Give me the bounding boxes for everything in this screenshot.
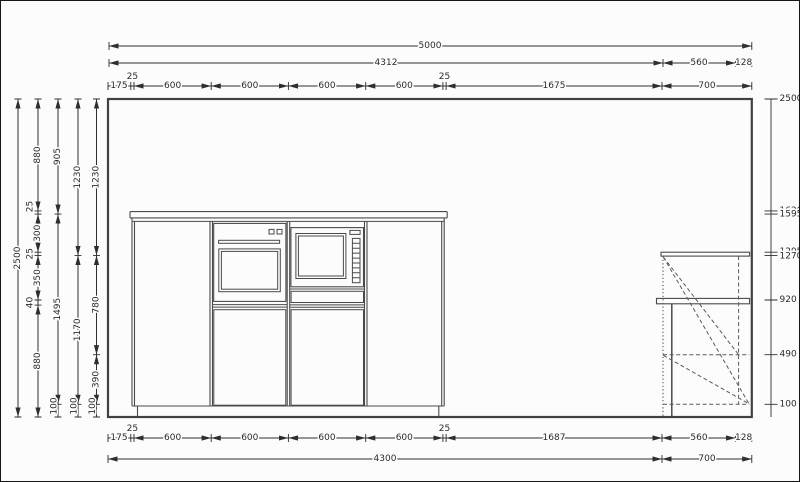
dim-label: 560 [690,433,707,443]
dim-label: 600 [318,433,335,443]
oven-window [219,249,280,292]
dim-label: 600 [164,433,181,443]
dim-label: 25 [26,248,36,259]
dim-label: 1495 [53,298,63,321]
upper-shelf [661,252,750,256]
oven-handle [219,240,280,243]
microwave-cabinet-drawer [291,291,363,302]
oven-knob-icon [269,229,274,234]
cornice [130,212,447,218]
dim-label: 700 [698,81,715,91]
room-outline [108,99,752,417]
dim-label: 600 [241,81,258,91]
dim-label: 600 [241,433,258,443]
dimension-lines [18,46,752,459]
dim-label: 25 [127,424,138,434]
dim-label: 600 [396,433,413,443]
dim-label: 40 [26,297,36,309]
dim-label: 600 [396,81,413,91]
dim-label: 175 [110,81,127,91]
dim-label: 100 [70,397,80,414]
dim-label: 100 [50,397,60,414]
built-in-microwave [291,228,364,287]
elevation-label: 920 [780,295,797,305]
dim-label: 25 [439,72,450,82]
oven-knob-icon [277,229,282,234]
dim-label: 4300 [374,454,397,464]
tall-cabinet-run [130,212,447,416]
kitchen-elevation-drawing: 2500 1620 1595 1295 1270 920 490 100 500… [1,1,800,482]
elevation-label: 100 [780,399,797,409]
dim-label: 880 [33,352,43,369]
countertop [657,298,750,303]
short-dimension-segments [38,63,752,438]
built-in-oven [214,223,286,301]
microwave-buttons [352,243,360,277]
dim-label: 25 [439,424,450,434]
dimension-labels-left: 2500 880 25 300 25 350 40 880 905 1495 1… [13,146,102,414]
hidden-lines [663,256,749,404]
elevation-label: 490 [780,350,797,360]
microwave-display [350,230,360,234]
dim-label: 390 [92,371,102,388]
cad-elevation-canvas: 2500 1620 1595 1295 1270 920 490 100 500… [0,0,800,482]
oven-window-inner [221,251,277,289]
elevation-ruler: 2500 1620 1595 1295 1270 920 490 100 [765,94,800,417]
dim-label: 1230 [92,165,102,188]
dim-label: 2500 [13,246,23,269]
dimension-labels-bottom: 175 25 600 600 600 600 25 1687 560 128 4… [110,424,752,464]
dim-label: 600 [164,81,181,91]
microwave-cabinet-door [291,310,363,406]
oven-cabinet-shelf-lines [213,305,288,308]
bar-counter-unit [657,252,750,416]
microwave-window-inner [298,236,343,276]
dim-label: 1170 [73,318,83,341]
dim-label: 128 [735,58,752,68]
dim-label: 1687 [543,433,566,443]
microwave-button-strip [352,238,360,282]
dim-label: 25 [26,201,36,212]
dim-label: 600 [318,81,335,91]
plinth [132,406,444,416]
dim-label: 700 [698,454,715,464]
dim-label: 128 [735,433,752,443]
elevation-label: 2500 [780,94,800,104]
oven-cabinet-door [214,310,286,406]
elevation-label: 1270 [780,251,800,261]
dimension-labels-top: 5000 4312 560 128 175 25 600 600 600 600… [110,41,752,91]
dim-label: 100 [88,397,98,414]
dim-label: 25 [127,72,138,82]
dim-label: 560 [690,58,707,68]
cabinet-dividers [132,218,444,406]
dimension-ticks [15,42,752,463]
microwave-window [296,234,346,279]
elevation-label: 1595 [780,210,800,220]
dim-label: 175 [110,433,127,443]
dim-label: 5000 [419,41,442,51]
dim-label: 780 [92,296,102,313]
dim-label: 1675 [543,81,566,91]
dim-label: 350 [33,269,43,286]
dim-label: 905 [53,148,63,165]
dim-label: 4312 [375,58,398,68]
dim-label: 300 [33,224,43,241]
dim-label: 1230 [73,165,83,188]
dim-label: 880 [33,146,43,163]
